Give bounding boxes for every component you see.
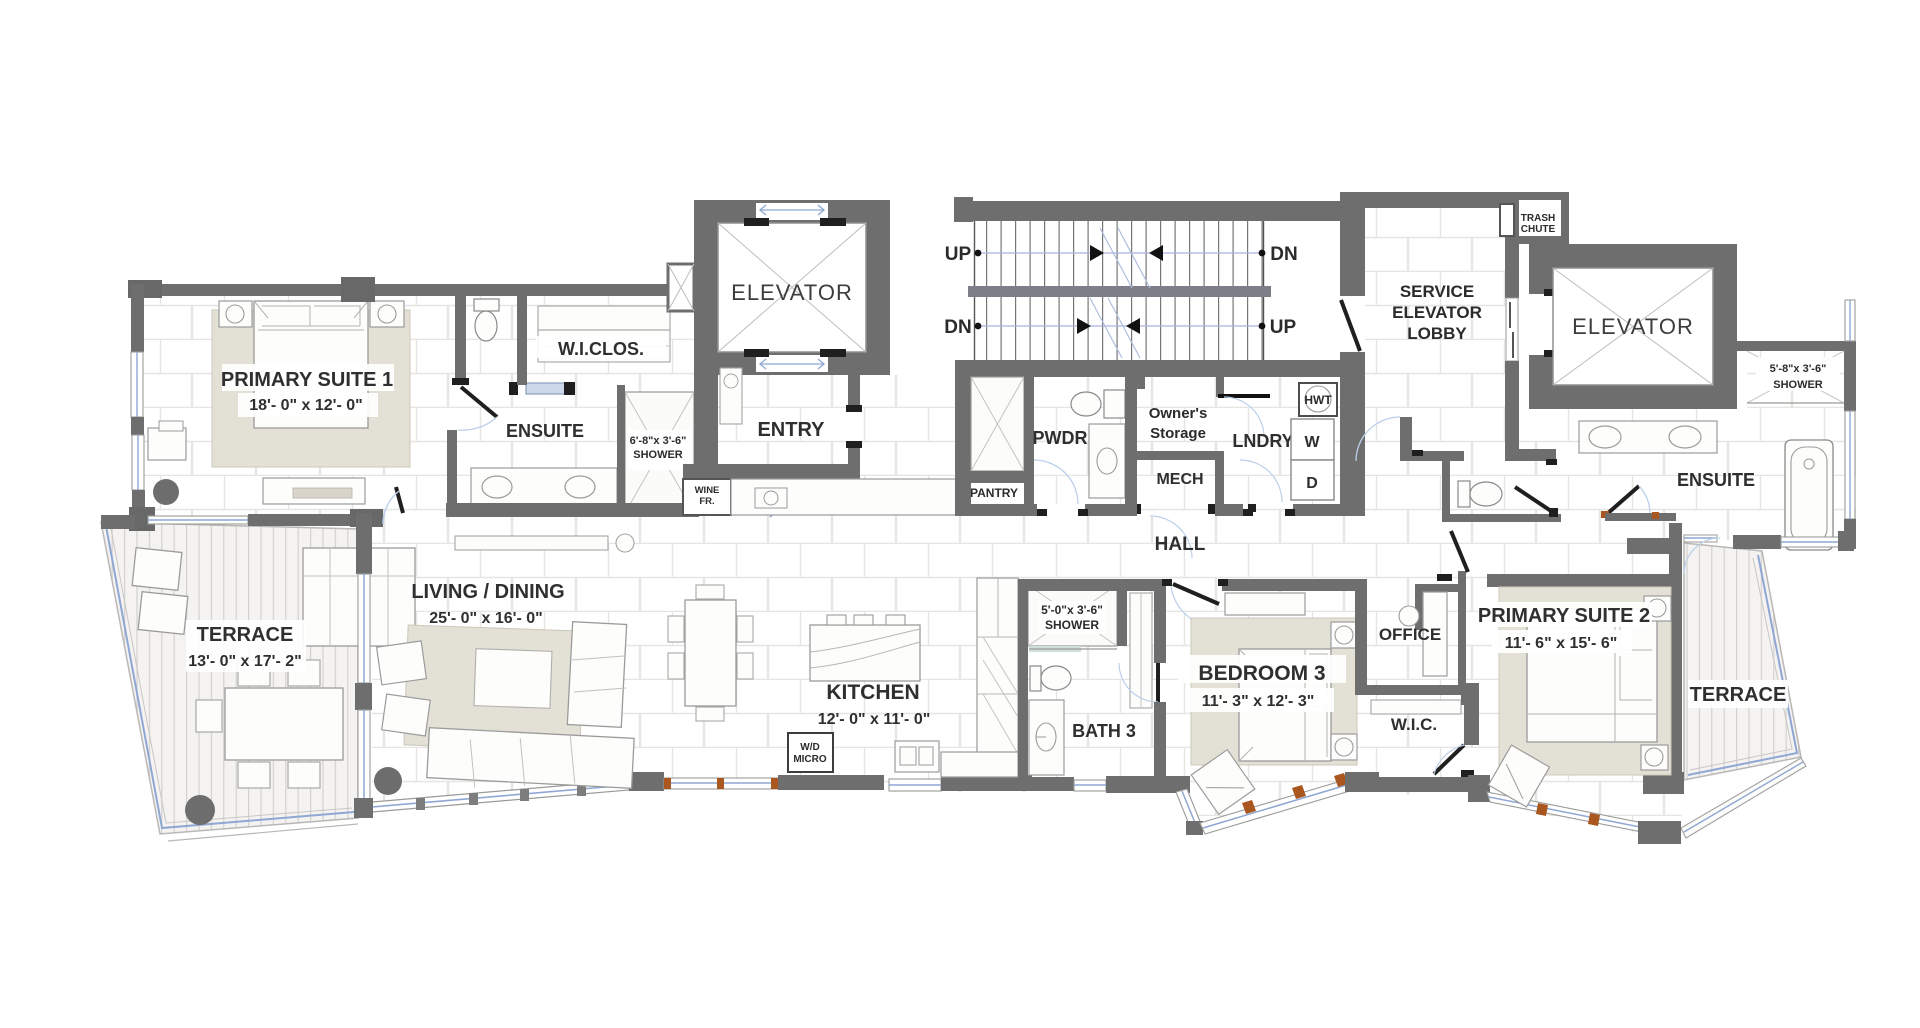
svg-text:SHOWER: SHOWER <box>1773 379 1823 391</box>
svg-text:13'- 0" x 17'- 2": 13'- 0" x 17'- 2" <box>188 653 302 670</box>
svg-text:ENSUITE: ENSUITE <box>1677 470 1755 490</box>
svg-text:WINE: WINE <box>695 485 720 496</box>
svg-text:PWDR: PWDR <box>1033 428 1088 448</box>
svg-text:KITCHEN: KITCHEN <box>826 681 919 704</box>
svg-text:DN: DN <box>944 317 971 338</box>
svg-text:ELEVATOR: ELEVATOR <box>1572 314 1694 339</box>
svg-text:LOBBY: LOBBY <box>1407 324 1467 343</box>
svg-text:SHOWER: SHOWER <box>633 449 683 461</box>
svg-text:Storage: Storage <box>1150 425 1206 442</box>
svg-text:UP: UP <box>1270 317 1297 338</box>
svg-text:5'-8"x 3'-6": 5'-8"x 3'-6" <box>1770 363 1827 375</box>
svg-text:W/D: W/D <box>800 742 819 753</box>
svg-text:Owner's: Owner's <box>1149 405 1208 422</box>
svg-text:18'- 0" x 12'- 0": 18'- 0" x 12'- 0" <box>249 397 363 414</box>
svg-text:TERRACE: TERRACE <box>1690 684 1787 706</box>
svg-text:TRASH: TRASH <box>1521 213 1555 224</box>
svg-text:6'-8"x 3'-6": 6'-8"x 3'-6" <box>630 435 687 447</box>
svg-text:BEDROOM 3: BEDROOM 3 <box>1198 662 1325 685</box>
svg-text:25'- 0" x 16'- 0": 25'- 0" x 16'- 0" <box>429 610 543 627</box>
svg-text:W.I.CLOS.: W.I.CLOS. <box>558 339 644 359</box>
svg-text:LNDRY: LNDRY <box>1232 431 1293 451</box>
svg-text:D: D <box>1306 475 1318 492</box>
svg-text:W.I.C.: W.I.C. <box>1391 715 1437 734</box>
svg-text:5'-0"x 3'-6": 5'-0"x 3'-6" <box>1041 603 1103 617</box>
svg-text:CHUTE: CHUTE <box>1521 224 1556 235</box>
svg-text:PRIMARY SUITE 2: PRIMARY SUITE 2 <box>1478 605 1650 627</box>
svg-text:ENSUITE: ENSUITE <box>506 421 584 441</box>
svg-text:MICRO: MICRO <box>793 754 827 765</box>
svg-text:ELEVATOR: ELEVATOR <box>731 280 853 305</box>
svg-text:UP: UP <box>945 244 972 265</box>
svg-text:PRIMARY SUITE 1: PRIMARY SUITE 1 <box>221 369 393 391</box>
svg-text:ELEVATOR: ELEVATOR <box>1392 303 1482 322</box>
svg-text:12'- 0" x 11'- 0": 12'- 0" x 11'- 0" <box>818 711 931 728</box>
svg-text:DN: DN <box>1270 244 1297 265</box>
svg-text:OFFICE: OFFICE <box>1379 625 1441 644</box>
svg-text:HALL: HALL <box>1155 534 1206 555</box>
svg-text:TERRACE: TERRACE <box>197 624 294 646</box>
svg-text:ENTRY: ENTRY <box>757 419 825 441</box>
svg-text:HWT: HWT <box>1304 393 1332 407</box>
svg-text:LIVING / DINING: LIVING / DINING <box>411 581 564 603</box>
svg-text:11'- 6" x 15'- 6": 11'- 6" x 15'- 6" <box>1505 635 1618 652</box>
svg-text:SHOWER: SHOWER <box>1045 618 1099 632</box>
svg-text:SERVICE: SERVICE <box>1400 282 1474 301</box>
svg-text:11'- 3" x 12'- 3": 11'- 3" x 12'- 3" <box>1202 693 1315 710</box>
svg-text:PANTRY: PANTRY <box>970 486 1018 500</box>
svg-text:MECH: MECH <box>1156 471 1203 488</box>
svg-text:BATH 3: BATH 3 <box>1072 721 1136 741</box>
svg-text:FR.: FR. <box>699 496 714 507</box>
svg-text:W: W <box>1304 434 1320 451</box>
